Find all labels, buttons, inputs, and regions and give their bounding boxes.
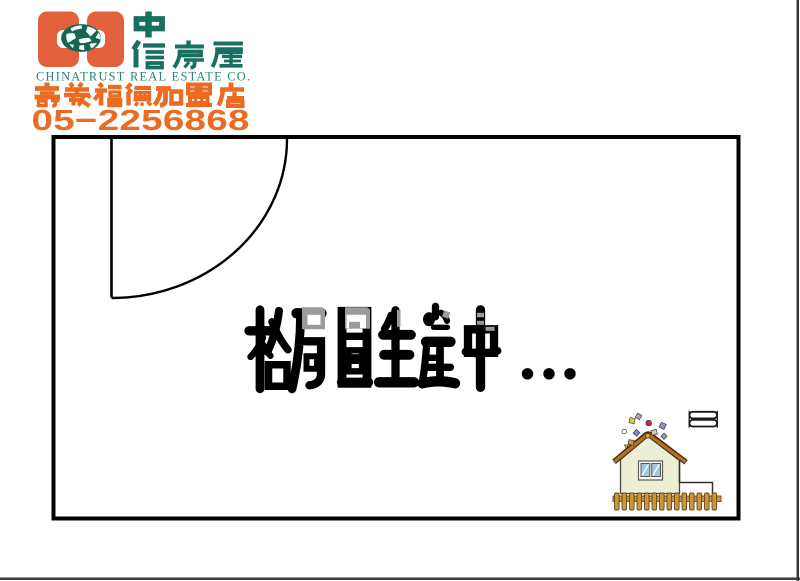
svg-text:CHINATRUST REAL ESTATE CO.: CHINATRUST REAL ESTATE CO. — [36, 69, 251, 83]
svg-text:05−2256868: 05−2256868 — [32, 105, 250, 137]
